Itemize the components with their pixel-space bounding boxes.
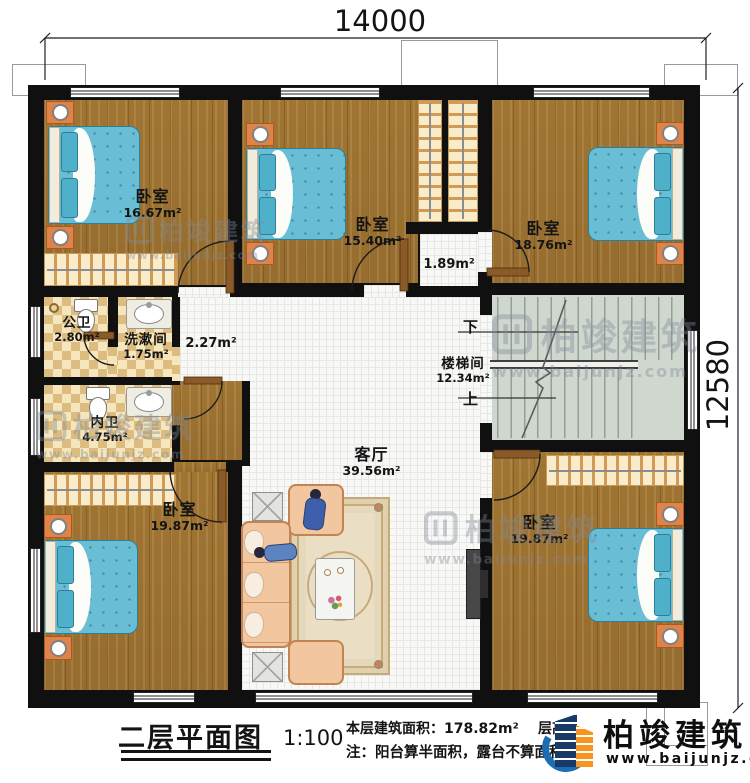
- room-label-bedroom-m: 卧室 15.40m²: [325, 216, 420, 248]
- watermark: 柏竣建筑 www.baijunjz.com: [492, 308, 701, 382]
- logo-building-blue: [555, 714, 577, 767]
- room-label-stairwell: 楼梯间 12.34m²: [432, 357, 494, 385]
- floor-plan-page: 卧室 16.67m² 卧室 15.40m² 卧室 18.76m² 卧室 19.8…: [0, 0, 750, 783]
- room-label-bedroom-bl: 卧室 19.87m²: [132, 501, 227, 533]
- room-label-bath-public: 公卫 2.80m²: [46, 316, 108, 344]
- room-label-bedroom-tr: 卧室 18.76m²: [496, 220, 591, 252]
- plan-scale: 1:100: [283, 726, 344, 750]
- dimension-top: 14000: [330, 4, 430, 38]
- title-underline: [121, 758, 271, 761]
- stair-up-label: 上: [463, 388, 478, 409]
- dimension-right: 12580: [701, 325, 733, 445]
- brand-website: www.baijunjz.com: [606, 751, 750, 767]
- room-label-living: 客厅 39.56m²: [324, 446, 419, 478]
- watermark-logo-icon: [492, 314, 532, 354]
- room-label-washroom: 洗漱间 1.75m²: [114, 333, 178, 361]
- plan-note-text: 注：阳台算半面积，露台不算面积: [346, 741, 564, 762]
- watermark: 柏竣建筑 www.baijunjz.com: [126, 212, 268, 262]
- closet-area-label: 1.89m²: [419, 257, 479, 272]
- title-underline: [121, 750, 271, 753]
- brand-logo-icon: [545, 712, 601, 774]
- watermark-logo-icon: [36, 411, 66, 441]
- corridor-area-label: 2.27m²: [182, 336, 240, 351]
- watermark-logo-icon: [424, 511, 458, 545]
- floor-area-text: 本层建筑面积：178.82m²: [346, 718, 519, 738]
- brand-name: 柏竣建筑: [603, 710, 747, 755]
- watermark: 柏竣建筑 www.baijunjz.com: [36, 406, 195, 462]
- logo-building-orange: [576, 725, 593, 767]
- watermark-logo-icon: [126, 216, 153, 243]
- stair-down-label: 下: [463, 316, 478, 337]
- brand-logo: 柏竣建筑 www.baijunjz.com: [545, 710, 750, 778]
- watermark: 柏竣建筑 www.baijunjz.com: [424, 506, 599, 568]
- annotation-overlay: [0, 0, 750, 783]
